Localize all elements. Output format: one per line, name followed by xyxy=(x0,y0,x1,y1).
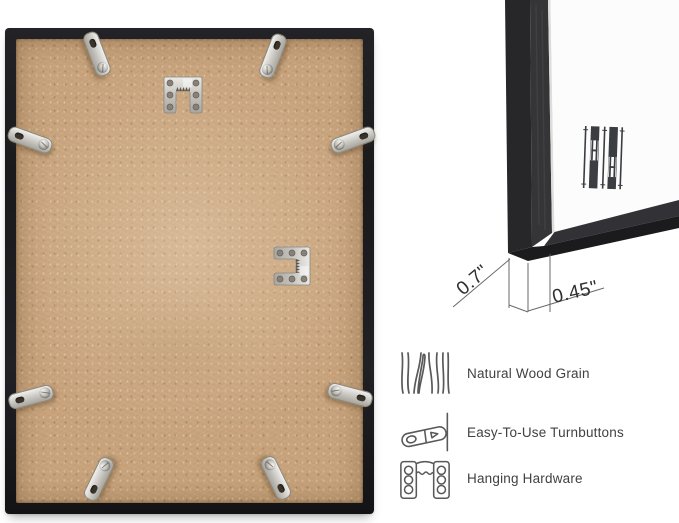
feature-row: Natural Wood Grain xyxy=(398,351,590,395)
turnbutton-slot xyxy=(15,396,25,404)
turnbutton-slot xyxy=(88,38,97,49)
feature-label: Natural Wood Grain xyxy=(467,366,590,381)
frame-side-face xyxy=(505,0,532,253)
hanging-hardware-icon xyxy=(398,453,452,503)
turnbutton-screw xyxy=(98,458,113,473)
feature-row: Easy-To-Use Turnbuttons xyxy=(398,407,624,457)
turnbutton-slot xyxy=(273,40,282,51)
product-image: 0.7" 0.45" Natural Wood Grain xyxy=(0,0,679,523)
wood-grain-icon xyxy=(398,351,452,395)
turnbutton-screw xyxy=(260,62,274,76)
bracket-highlight xyxy=(300,266,309,275)
turnbutton-icon xyxy=(398,407,452,457)
turnbutton-screw xyxy=(332,137,346,151)
turnbutton-slot xyxy=(276,483,285,494)
feature-list: Natural Wood Grain Easy-To-Use Turnbutto… xyxy=(398,345,679,517)
turnbutton-screw xyxy=(96,60,110,74)
face-width-dimension-label: 0.45" xyxy=(550,277,600,308)
turnbutton-screw xyxy=(37,137,51,151)
feature-row: Hanging Hardware xyxy=(398,453,583,503)
turnbutton-screw xyxy=(329,384,342,397)
turnbutton-slot xyxy=(359,132,370,141)
hanging-hardware-side xyxy=(273,244,311,288)
feature-label: Hanging Hardware xyxy=(467,471,583,486)
bracket-highlight xyxy=(183,79,192,88)
turnbutton-slot xyxy=(356,394,366,402)
frame-profile-view: 0.7" 0.45" xyxy=(430,0,679,330)
turnbutton-slot xyxy=(89,484,98,495)
feature-label: Easy-To-Use Turnbuttons xyxy=(467,425,624,440)
frame-back-photo xyxy=(5,28,374,514)
mat-board xyxy=(551,0,679,232)
turnbutton-slot xyxy=(14,132,25,141)
turnbutton-screw xyxy=(38,386,51,399)
depth-dimension-label: 0.7" xyxy=(453,261,493,300)
hanging-hardware-top xyxy=(161,76,205,114)
turnbutton-screw xyxy=(263,457,278,472)
